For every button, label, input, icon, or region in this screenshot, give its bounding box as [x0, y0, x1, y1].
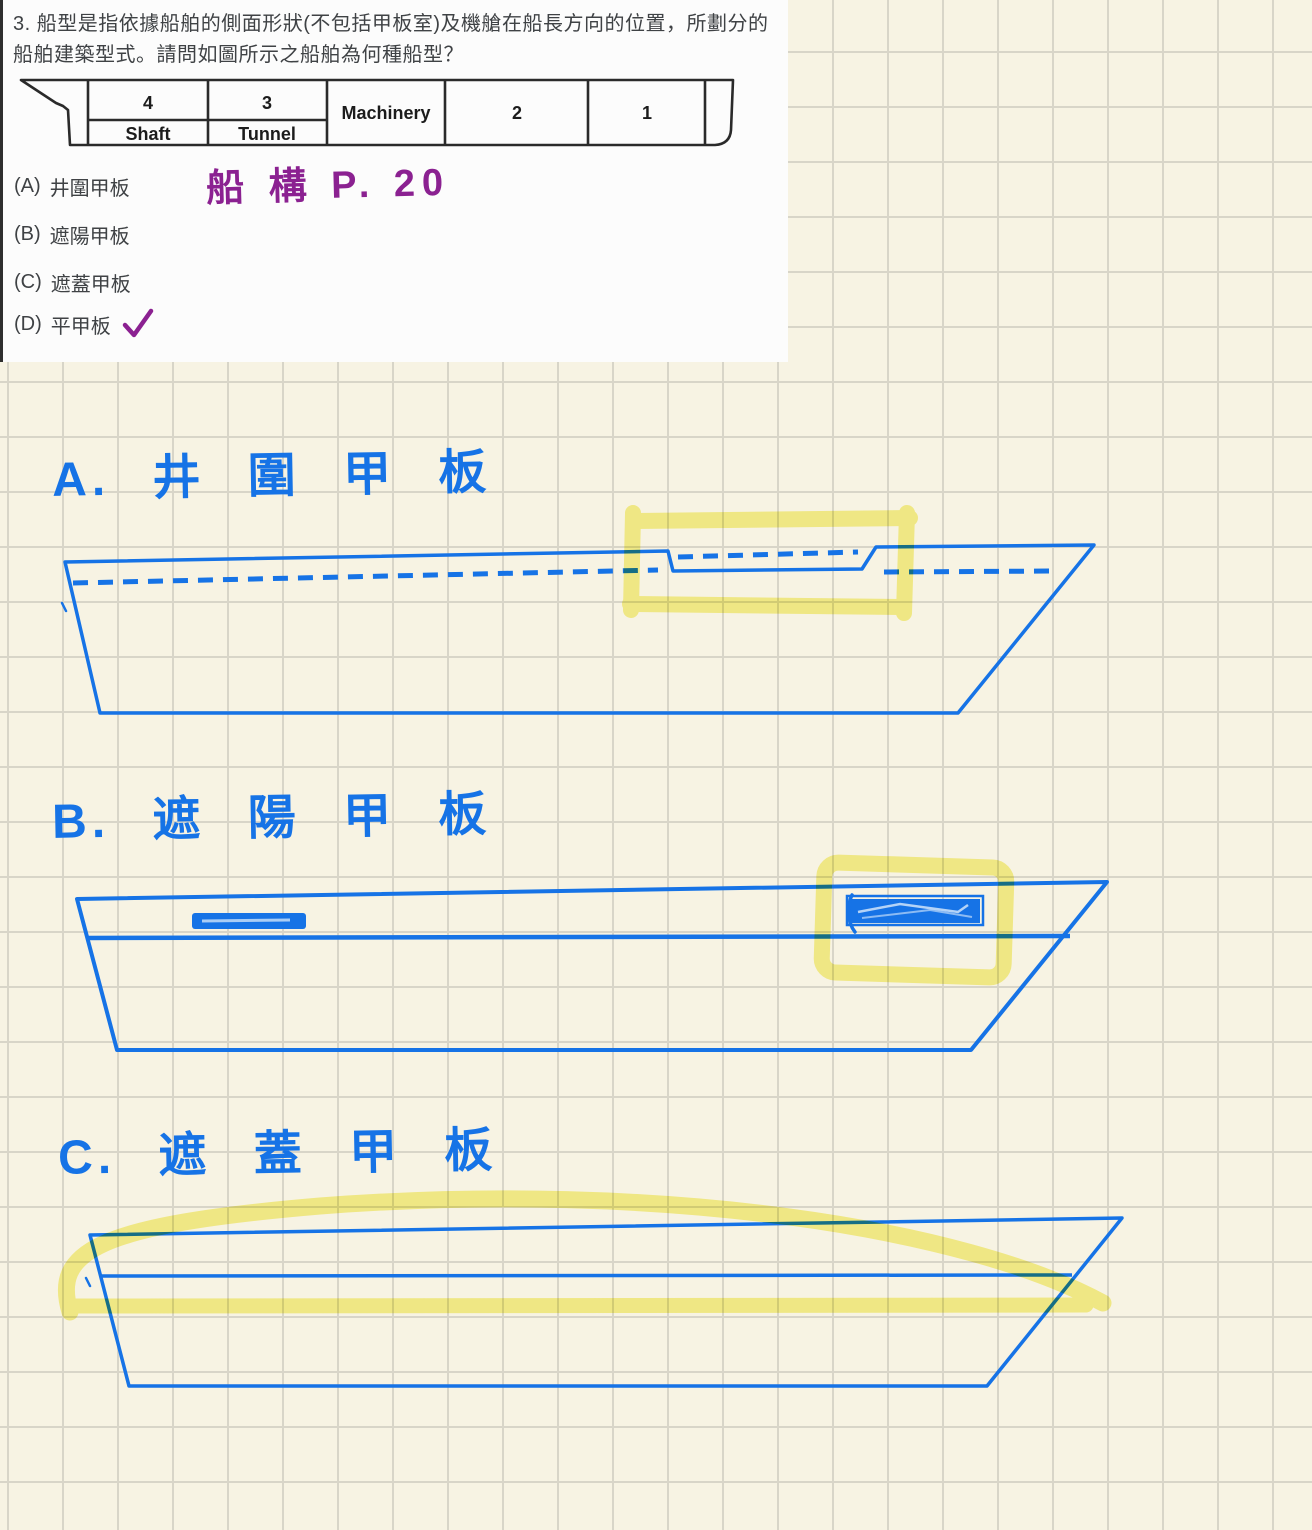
ship-b-sketch [77, 862, 1107, 1050]
ship-b-left-scribble [192, 913, 306, 929]
ship-c-sketch [66, 1199, 1122, 1386]
ship-b-right-scribble [847, 895, 983, 932]
highlight-shelter-deck [66, 1199, 1103, 1312]
grid-note-page: 3. 船型是指依據船舶的側面形狀(不包括甲板室)及機艙在船長方向的位置，所劃分的… [0, 0, 1312, 1530]
ship-a-sketch [62, 513, 1094, 713]
handwritten-ship-sketches [0, 0, 1312, 1530]
